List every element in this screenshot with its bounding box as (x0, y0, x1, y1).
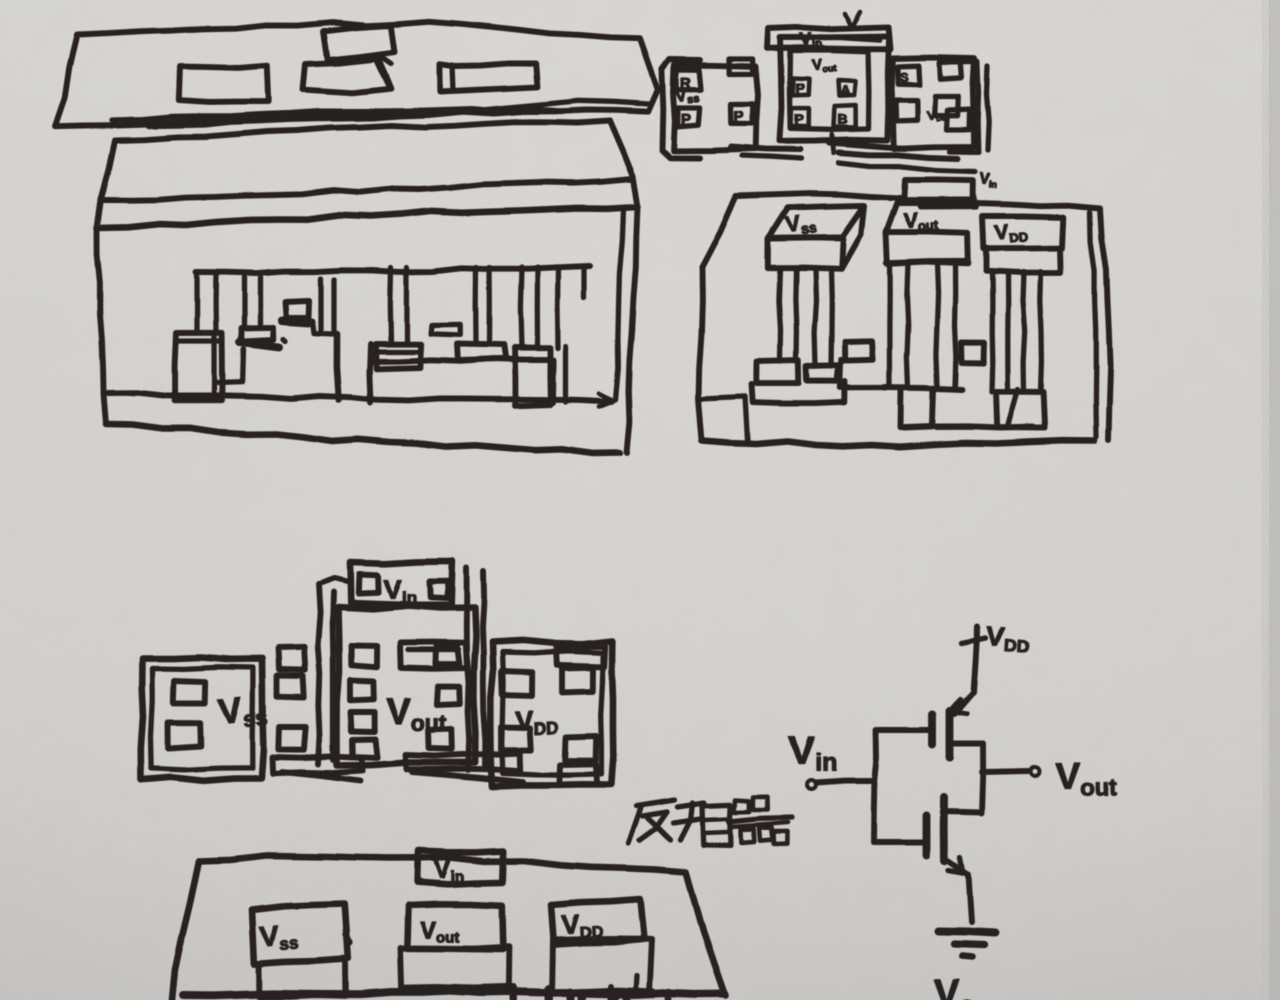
svg-text:S: S (900, 69, 909, 84)
svg-text:P: P (734, 108, 744, 125)
svg-text:P: P (681, 111, 691, 128)
svg-text:P: P (795, 80, 804, 96)
svg-text:R: R (680, 75, 691, 92)
svg-text:P: P (794, 111, 803, 127)
svg-text:B: B (837, 111, 847, 127)
svg-text:A: A (840, 82, 850, 98)
